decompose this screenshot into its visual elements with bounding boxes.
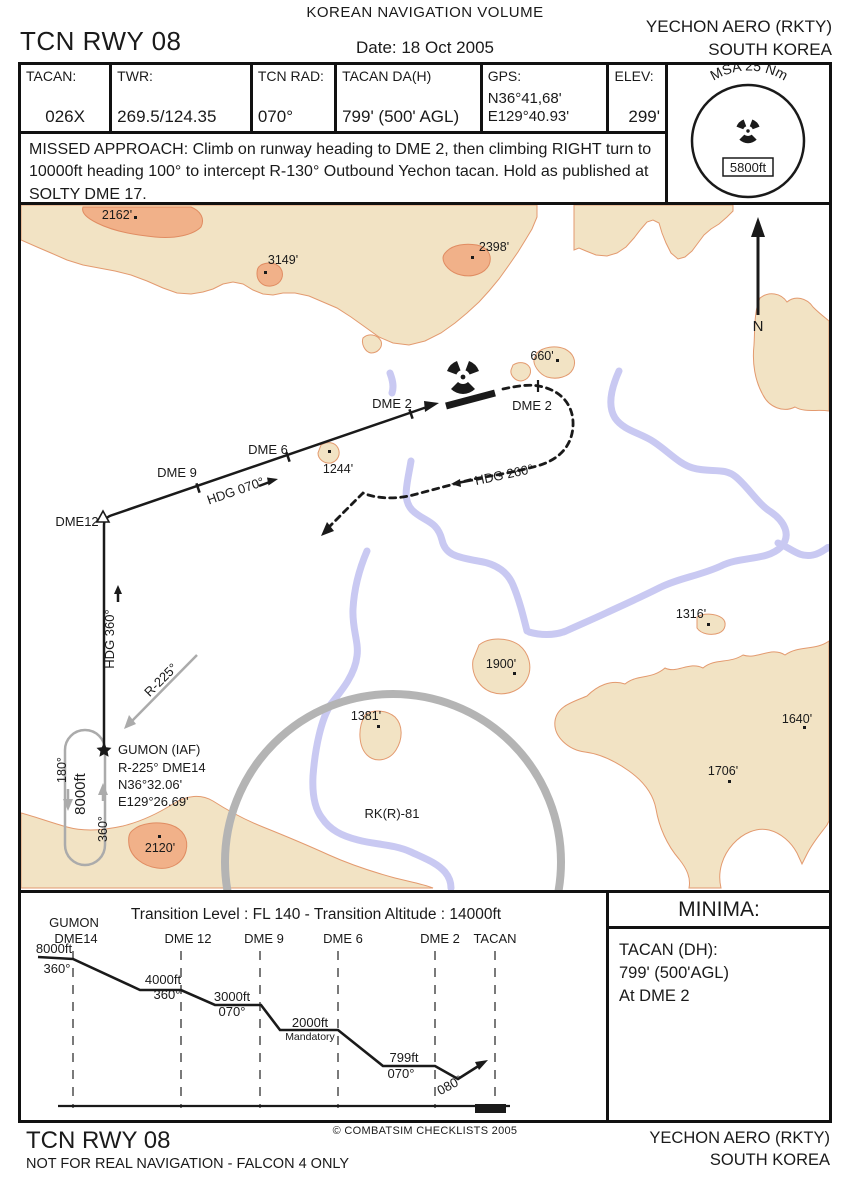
minima-line: At DME 2 [619, 985, 819, 1008]
holding-inbound-label: 360° [96, 816, 110, 842]
msa-altitude: 5800ft [730, 160, 767, 175]
gps-latitude: N36°41,68' [488, 90, 602, 109]
holding-outbound-label: 180° [55, 757, 69, 783]
dme6-label: DME 6 [248, 442, 288, 457]
profile-fix-dme6: DME 6 [323, 931, 363, 946]
step-note: Mandatory [285, 1031, 335, 1043]
tcn-radial-value: 070° [258, 107, 329, 127]
footer-airport-country: SOUTH KOREA [649, 1149, 830, 1171]
step-alt: 4000ft [145, 972, 182, 987]
elevation-value: 299' [614, 107, 660, 127]
runway-icon [446, 393, 495, 406]
radial-label: R-225° [141, 660, 180, 699]
msa-diagram: MSA 25 Nm 5800ft [668, 65, 829, 202]
tacan-dah-cell: TACAN DA(H) 799' (500' AGL) [337, 65, 483, 131]
tacan-dah-value: 799' (500' AGL) [342, 107, 475, 127]
gumon-lon: E129°26.69' [118, 794, 189, 809]
spot-elevation-label: 1900' [486, 657, 516, 671]
elevation-cell: ELEV: 299' [609, 65, 665, 131]
profile-view: Transition Level : FL 140 - Transition A… [21, 893, 606, 1120]
spot-elevation-label: 2120' [145, 841, 175, 855]
profile-fix-dme2: DME 2 [420, 931, 460, 946]
spot-elevation-label: 3149' [268, 253, 298, 267]
tcn-radial-label: TCN RAD: [258, 68, 329, 84]
profile-fix-dme12: DME 12 [165, 931, 212, 946]
footer-airport-block: YECHON AERO (RKTY) SOUTH KOREA [649, 1127, 830, 1172]
spot-elevation-label: 660' [530, 349, 553, 363]
gumon-fix: R-225° DME14 [118, 760, 206, 775]
plan-view-box: RK(R)-81 180° 8000ft 360° R-225° [18, 202, 832, 893]
tacan-station-icon [447, 361, 479, 394]
gumon-lat: N36°32.06' [118, 777, 182, 792]
approach-plan-map: RK(R)-81 180° 8000ft 360° R-225° [21, 205, 829, 890]
airport-name-block: YECHON AERO (RKTY) SOUTH KOREA [646, 16, 832, 62]
minima-title: MINIMA: [609, 893, 829, 929]
profile-fix-tacan: TACAN [473, 931, 516, 946]
minima-body: TACAN (DH): 799' (500'AGL) At DME 2 [609, 929, 829, 1018]
tacan-value: 026X [26, 107, 104, 127]
dme2-inbound-label: DME 2 [372, 396, 412, 411]
hdg-260-label: HDG 260° [473, 461, 534, 488]
tower-label: TWR: [117, 68, 245, 84]
restricted-area-label: RK(R)-81 [365, 806, 420, 821]
approach-chart-page: KOREAN NAVIGATION VOLUME TCN RWY 08 Date… [0, 0, 850, 1181]
step-alt: 2000ft [292, 1015, 329, 1030]
tacan-label: TACAN: [26, 68, 104, 84]
spot-elevation-label: 1244' [323, 462, 353, 476]
step-alt: 8000ft [36, 941, 73, 956]
spot-elevation-label: 1640' [782, 712, 812, 726]
minima-line: TACAN (DH): [619, 939, 819, 962]
profile-fix-dme9: DME 9 [244, 931, 284, 946]
north-label: N [753, 318, 764, 335]
gps-label: GPS: [488, 68, 602, 84]
gps-longitude: E129°40.93' [488, 108, 602, 127]
spot-elevation-label: 2398' [479, 240, 509, 254]
dme2-missed-label: DME 2 [512, 398, 552, 413]
spot-elevation-label: 1706' [708, 764, 738, 778]
step-hdg: 070° [388, 1066, 415, 1081]
tcn-radial-cell: TCN RAD: 070° [253, 65, 337, 131]
footer-airport-name: YECHON AERO (RKTY) [649, 1127, 830, 1149]
tower-cell: TWR: 269.5/124.35 [112, 65, 253, 131]
holding-altitude-label: 8000ft [72, 772, 89, 815]
airport-country: SOUTH KOREA [646, 39, 832, 62]
profile-climb-arrowhead [475, 1060, 488, 1070]
msa-box: MSA 25 Nm 5800ft [665, 62, 832, 205]
step-hdg: 360° [44, 961, 71, 976]
elevation-label: ELEV: [614, 68, 660, 84]
spot-elevation-label: 1381' [351, 709, 381, 723]
profile-runway-icon [475, 1104, 506, 1113]
missed-approach-box: MISSED APPROACH: Climb on runway heading… [18, 131, 668, 205]
footer-disclaimer: NOT FOR REAL NAVIGATION - FALCON 4 ONLY [26, 1156, 349, 1172]
tacan-icon [736, 119, 759, 143]
spot-elevation-label: 2162' [102, 208, 132, 222]
tower-value: 269.5/124.35 [117, 107, 245, 127]
step-alt: 3000ft [214, 989, 251, 1004]
tacan-cell: TACAN: 026X [21, 65, 112, 131]
step-alt: 799ft [390, 1050, 419, 1065]
spot-elevation-label: 1316' [676, 607, 706, 621]
gps-cell: GPS: N36°41,68' E129°40.93' [483, 65, 610, 131]
profile-fix-gumon: GUMON [49, 915, 99, 930]
missed-approach-text: MISSED APPROACH: Climb on runway heading… [21, 134, 665, 211]
transition-info: Transition Level : FL 140 - Transition A… [131, 906, 502, 923]
step-hdg: 070° [219, 1004, 246, 1019]
hdg-360-label: HDG 360° [102, 609, 117, 668]
gumon-name: GUMON (IAF) [118, 742, 200, 757]
msa-radius-label: MSA 25 Nm [707, 65, 790, 83]
profile-view-box: Transition Level : FL 140 - Transition A… [18, 890, 609, 1123]
dme9-label: DME 9 [157, 465, 197, 480]
profile-step-labels: 8000ft 360° 4000ft 360° 3000ft 070° 2000… [36, 941, 465, 1098]
dme12-label: DME12 [55, 514, 98, 529]
frequency-info-table: TACAN: 026X TWR: 269.5/124.35 TCN RAD: 0… [18, 62, 668, 134]
step-hdg: 360° [154, 987, 181, 1002]
minima-line: 799' (500'AGL) [619, 962, 819, 985]
minima-box: MINIMA: TACAN (DH): 799' (500'AGL) At DM… [606, 890, 832, 1123]
tacan-dah-label: TACAN DA(H) [342, 68, 475, 84]
gps-coordinates: N36°41,68' E129°40.93' [488, 90, 602, 128]
airport-name: YECHON AERO (RKTY) [646, 16, 832, 39]
